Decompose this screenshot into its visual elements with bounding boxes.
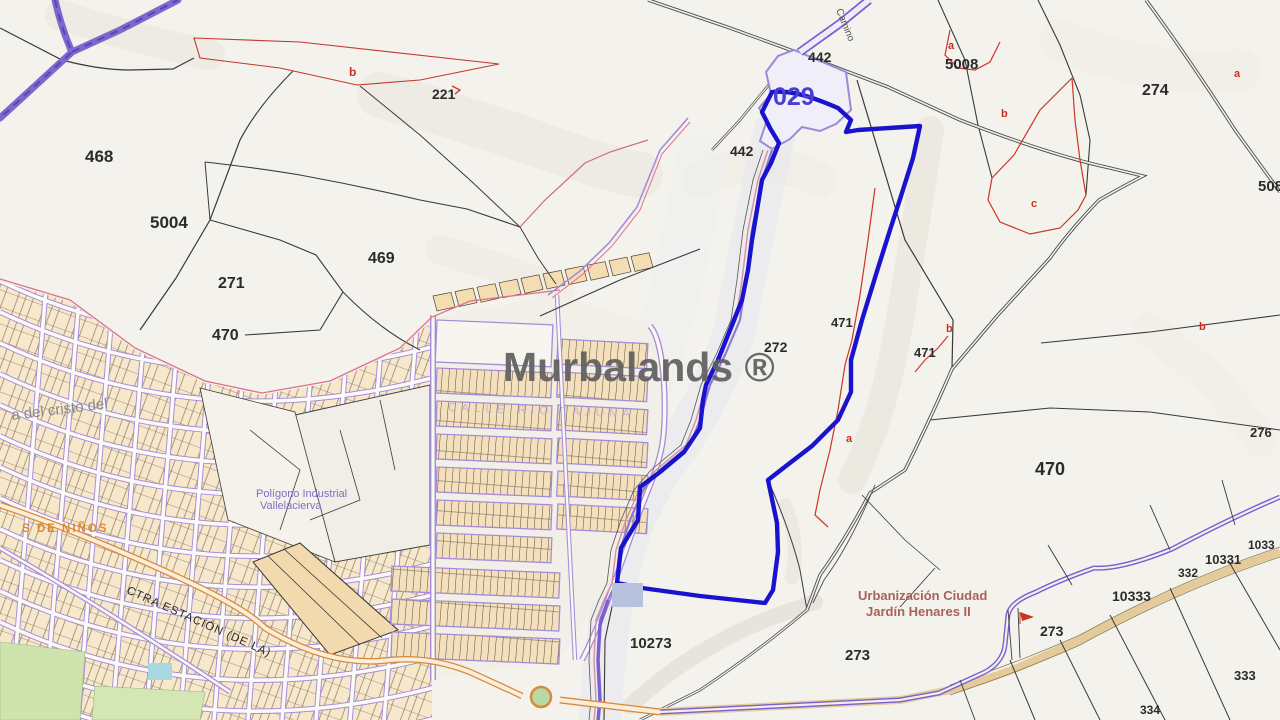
svg-text:332: 332 [1178,566,1198,580]
svg-text:276: 276 [1250,425,1272,440]
svg-text:Vallelacierva: Vallelacierva [260,500,322,512]
svg-text:a: a [948,40,955,52]
svg-text:Polígono Industrial: Polígono Industrial [256,488,347,500]
svg-text:b: b [349,65,356,79]
svg-text:c: c [1031,198,1037,210]
svg-text:10331: 10331 [1205,552,1241,567]
svg-text:470: 470 [1035,459,1065,479]
svg-text:273: 273 [845,647,870,664]
svg-text:334: 334 [1140,703,1160,717]
svg-text:468: 468 [85,147,113,166]
svg-text:471: 471 [831,315,853,330]
svg-text:10333: 10333 [1112,588,1151,604]
svg-text:5004: 5004 [150,213,188,232]
svg-text:Murbalands ®: Murbalands ® [503,344,775,390]
svg-text:471: 471 [914,345,936,360]
svg-text:469: 469 [368,250,395,267]
svg-text:271: 271 [218,275,245,292]
svg-text:b: b [1001,108,1008,120]
svg-text:S DE NIÑOS: S DE NIÑOS [22,522,108,535]
svg-text:1033: 1033 [1248,538,1275,552]
svg-text:442: 442 [808,49,832,65]
svg-text:470: 470 [212,327,239,344]
svg-text:442: 442 [730,143,754,159]
svg-text:10273: 10273 [630,635,672,652]
svg-text:333: 333 [1234,668,1256,683]
svg-text:273: 273 [1040,623,1064,639]
svg-text:029: 029 [773,83,815,111]
svg-text:5008: 5008 [945,56,978,73]
svg-text:Urbanización Ciudad: Urbanización Ciudad [858,588,987,603]
svg-text:508: 508 [1258,178,1280,195]
svg-text:274: 274 [1142,82,1169,99]
svg-text:b: b [946,323,953,335]
svg-text:Jardín Henares II: Jardín Henares II [866,604,971,619]
svg-text:221: 221 [432,86,456,102]
svg-text:a: a [1234,68,1241,80]
svg-text:a: a [846,433,853,445]
svg-text:b: b [1199,321,1206,333]
